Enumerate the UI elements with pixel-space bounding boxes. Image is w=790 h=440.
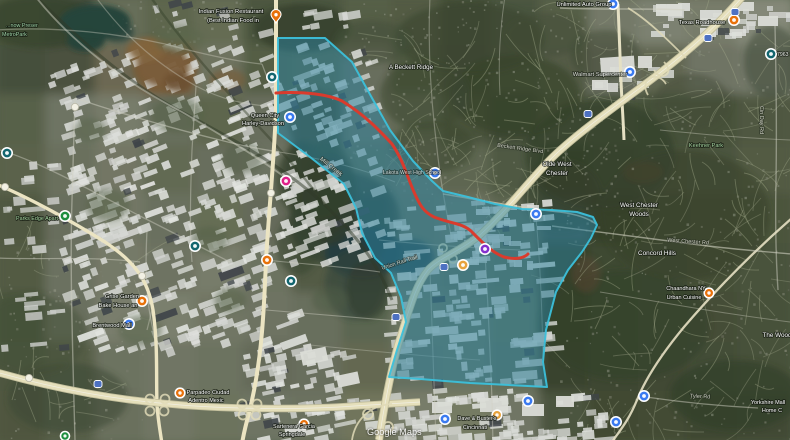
svg-text:Google Maps: Google Maps [367, 427, 422, 437]
svg-text:Sartenera Garcia: Sartenera Garcia [273, 424, 316, 430]
svg-text:Adentro Mexic: Adentro Mexic [188, 398, 223, 404]
svg-text:Yorkshire Mall: Yorkshire Mall [751, 400, 785, 406]
svg-text:A Beckett Ridge: A Beckett Ridge [389, 64, 434, 71]
svg-text:Urban Cuisine: Urban Cuisine [667, 295, 702, 301]
svg-text:Keehner Park: Keehner Park [689, 143, 723, 149]
svg-text:Texas Roadhouse: Texas Roadhouse [679, 20, 725, 26]
svg-text:Harley-Davidson: Harley-Davidson [242, 121, 284, 127]
svg-text:Dave & Buster's: Dave & Buster's [457, 416, 497, 422]
svg-text:Walmart Supercenter: Walmart Supercenter [573, 72, 628, 78]
svg-text:Tyler Rd: Tyler Rd [690, 393, 711, 400]
svg-text:Home C: Home C [762, 408, 782, 414]
svg-text:Parpadeo Ciudad: Parpadeo Ciudad [187, 390, 230, 396]
svg-text:Springdale: Springdale [279, 432, 305, 438]
svg-text:Bake House an: Bake House an [99, 303, 138, 309]
svg-text:...now Preser: ...now Preser [6, 23, 38, 29]
svg-text:Cin Day Rd: Cin Day Rd [758, 106, 764, 134]
svg-text:7963 L: 7963 L [777, 52, 790, 58]
svg-text:Unlimited Auto Group: Unlimited Auto Group [556, 2, 611, 8]
svg-text:West Chester: West Chester [620, 202, 658, 209]
svg-text:Woods: Woods [629, 211, 648, 218]
svg-text:Parks Edge Apart: Parks Edge Apart [16, 216, 58, 222]
svg-text:Indian Fusion Restaurant: Indian Fusion Restaurant [199, 9, 264, 15]
svg-text:Queen City: Queen City [251, 113, 280, 119]
svg-text:The Wood: The Wood [763, 332, 790, 339]
svg-text:Grise Garden: Grise Garden [105, 294, 139, 300]
svg-text:Olde West: Olde West [542, 161, 572, 168]
svg-text:MetroPark: MetroPark [2, 32, 27, 38]
svg-text:Chester: Chester [546, 170, 568, 177]
svg-text:Chaandhara NY: Chaandhara NY [666, 286, 706, 292]
svg-text:Cincinnati: Cincinnati [463, 425, 487, 431]
svg-text:Brentwood Mall: Brentwood Mall [92, 323, 131, 329]
svg-text:Lakota West High School: Lakota West High School [383, 170, 441, 176]
svg-text:(Best Indian Food in: (Best Indian Food in [207, 18, 259, 24]
svg-text:Concord Hills: Concord Hills [638, 250, 676, 257]
